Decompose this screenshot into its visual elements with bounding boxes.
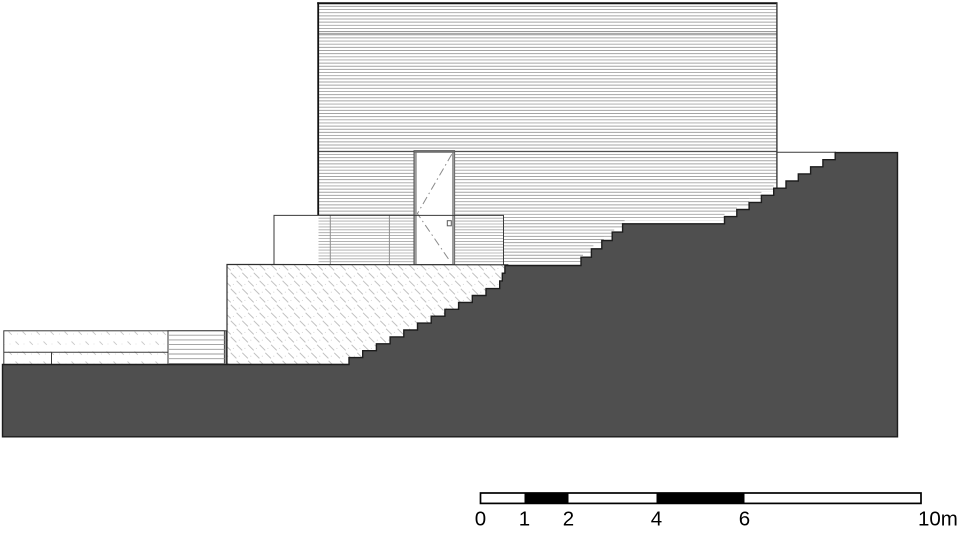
svg-text:2: 2 — [563, 508, 574, 531]
svg-text:4: 4 — [651, 508, 662, 531]
svg-text:1: 1 — [519, 508, 530, 531]
svg-text:0: 0 — [475, 508, 486, 531]
svg-text:6: 6 — [739, 508, 750, 531]
svg-text:10m: 10m — [918, 508, 958, 531]
